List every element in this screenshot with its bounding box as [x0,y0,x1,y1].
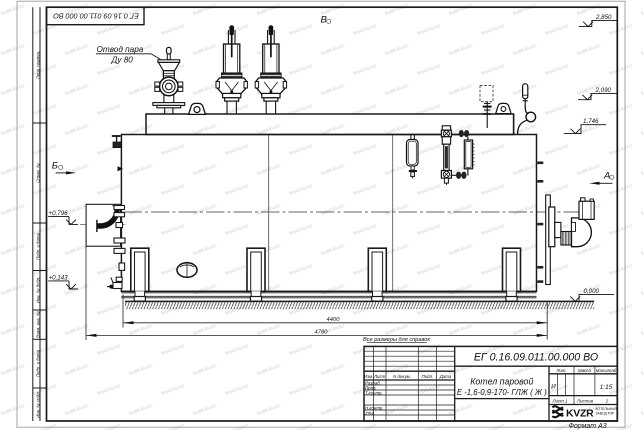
svg-text:Справ. №: Справ. № [36,163,41,183]
svg-text:0,000: 0,000 [584,288,600,295]
svg-text:Взам. инв. №: Взам. инв. № [36,311,41,338]
svg-text:1,746: 1,746 [583,118,599,125]
svg-text:Б: Б [52,161,58,172]
svg-text:Лист 1: Лист 1 [552,398,569,403]
svg-text:2,090: 2,090 [595,87,612,94]
svg-text:ЕГ 0.16.09.011.00.000 ВО: ЕГ 0.16.09.011.00.000 ВО [474,351,598,363]
svg-text:Подп. и дата: Подп. и дата [36,350,41,378]
svg-text:Все размеры для справок: Все размеры для справок [363,337,430,343]
svg-text:Т.контр.: Т.контр. [365,391,383,396]
svg-text:Перв. примен.: Перв. примен. [36,51,41,80]
svg-text:1:15: 1:15 [600,384,613,391]
svg-text:Инв. № подл.: Инв. № подл. [36,391,41,418]
svg-text:4400: 4400 [327,317,341,323]
svg-text:+0,796: +0,796 [49,210,69,217]
svg-text:Масштаб: Масштаб [596,368,617,373]
svg-text:Ду 80: Ду 80 [111,56,134,65]
svg-text:ЗАВОД РЗР: ЗАВОД РЗР [596,412,615,416]
svg-text:Подп.: Подп. [422,374,434,379]
svg-text:2: 2 [605,398,609,403]
svg-text:ЕГ 0.16.09.011.00.000 ВО: ЕГ 0.16.09.011.00.000 ВО [53,11,139,20]
svg-text:А: А [603,171,610,182]
svg-text:Лист: Лист [373,374,386,379]
svg-text:KVZR: KVZR [566,409,594,420]
svg-text:Лит.: Лит. [555,368,566,373]
svg-text:Листов: Листов [576,398,594,403]
svg-text:Котел паровой: Котел паровой [470,377,533,387]
svg-text:N докум.: N докум. [393,374,411,379]
svg-text:КОТЕЛЬНЫЙ: КОТЕЛЬНЫЙ [596,407,618,411]
svg-text:2,850: 2,850 [595,14,612,21]
svg-text:Формат А3: Формат А3 [568,423,606,430]
svg-text:Изм.: Изм. [364,374,373,379]
svg-text:Инв. № дубл.: Инв. № дубл. [36,277,41,303]
svg-text:4780: 4780 [315,330,329,336]
svg-text:Утв.: Утв. [365,410,375,415]
svg-text:В: В [321,15,328,26]
svg-text:И: И [551,384,556,391]
svg-text:Е -1,6-0,9-170- ГЛЖ ( Ж ): Е -1,6-0,9-170- ГЛЖ ( Ж ) [457,388,547,397]
svg-text:Дата: Дата [439,374,452,379]
svg-text:+0,143: +0,143 [49,274,69,281]
svg-text:Подп. и дата: Подп. и дата [36,233,41,261]
svg-text:Масса: Масса [578,368,592,373]
svg-text:Отвод пара: Отвод пара [97,45,144,54]
